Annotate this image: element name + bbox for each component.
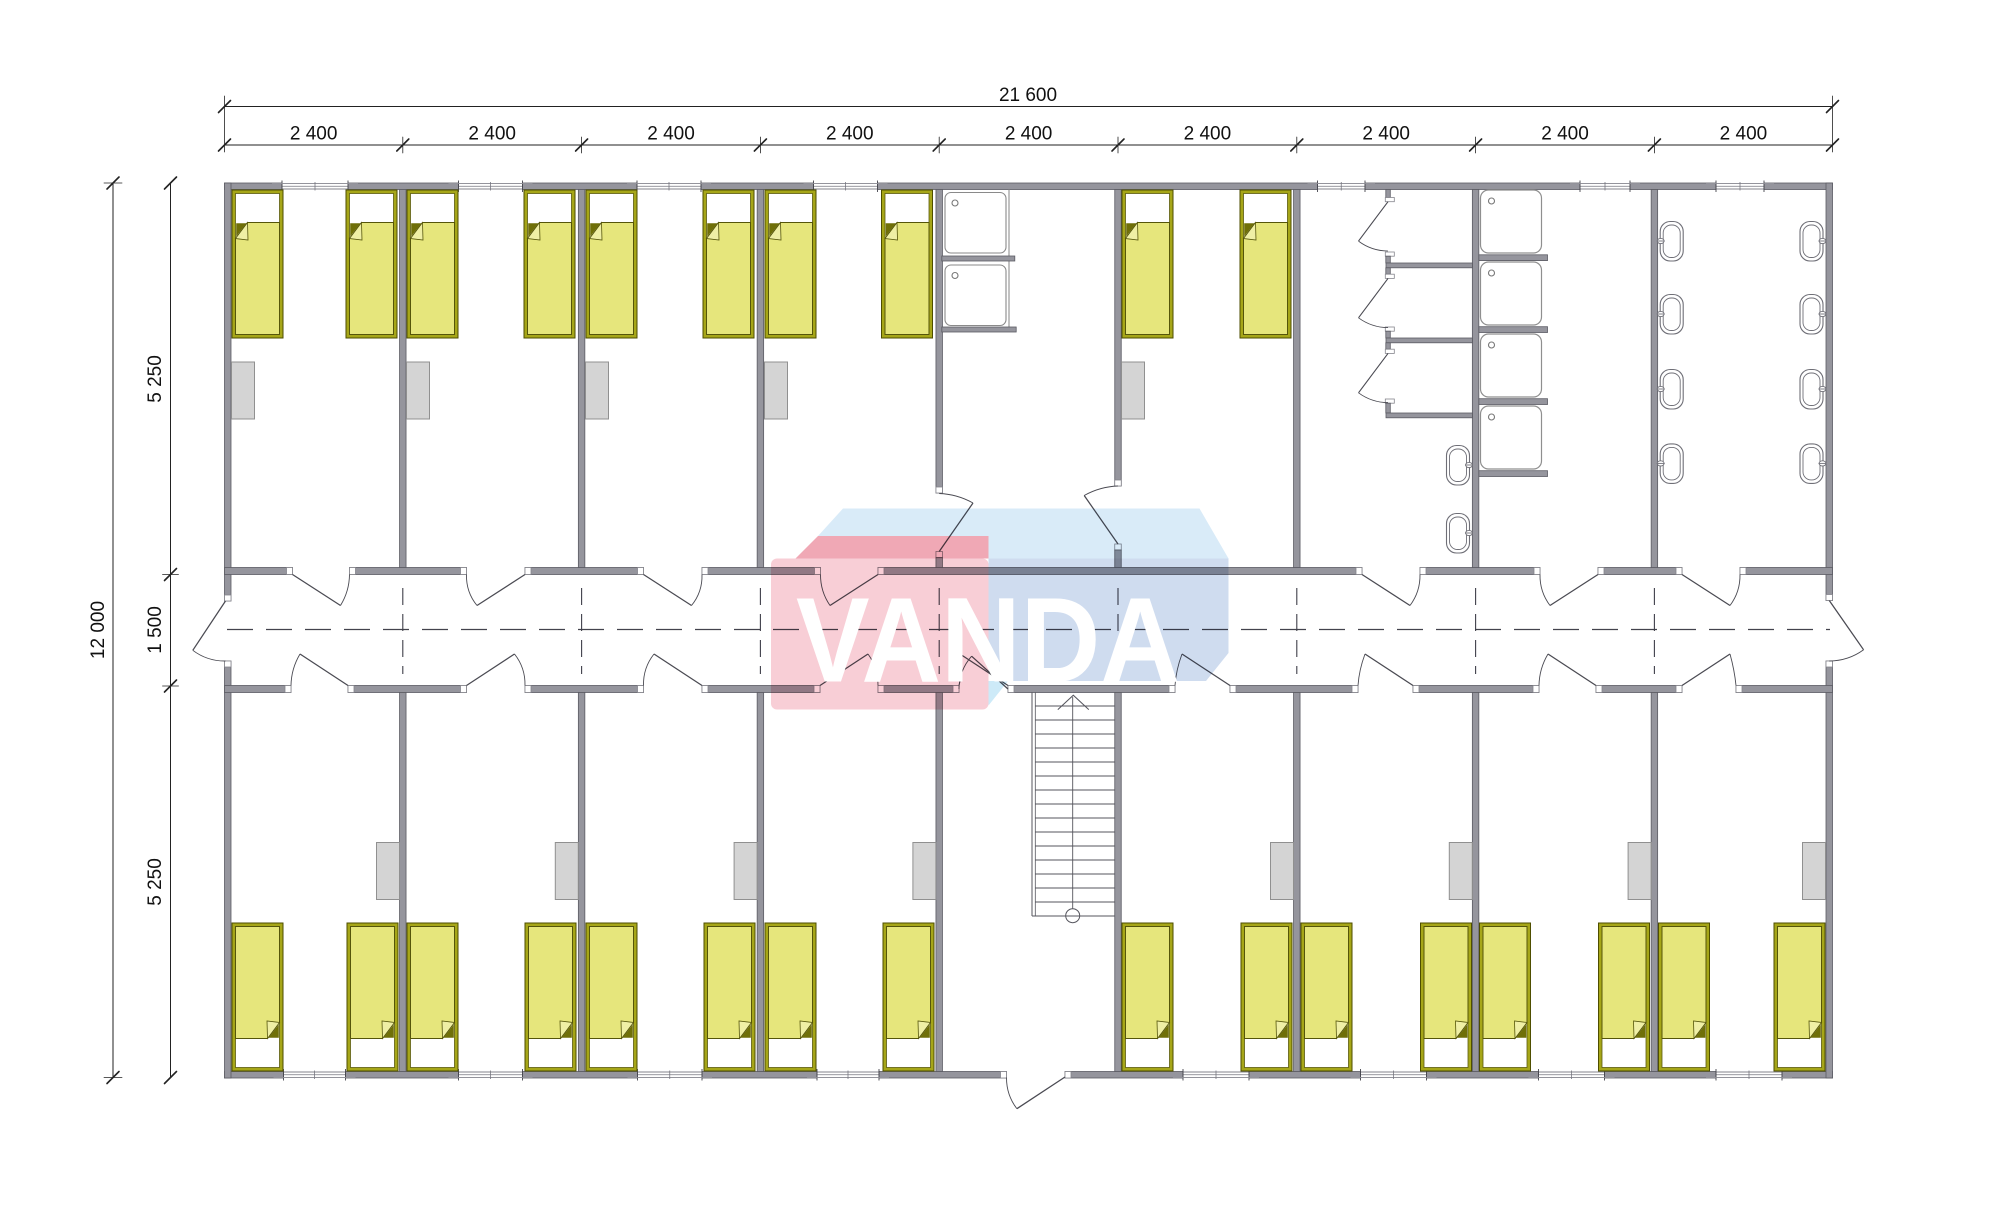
svg-text:2 400: 2 400 [1184, 124, 1232, 145]
svg-text:5 250: 5 250 [145, 355, 166, 403]
svg-text:21 600: 21 600 [999, 85, 1057, 106]
svg-text:2 400: 2 400 [1005, 124, 1053, 145]
svg-text:2 400: 2 400 [1720, 124, 1768, 145]
svg-text:2 400: 2 400 [1362, 124, 1410, 145]
svg-text:2 400: 2 400 [290, 124, 338, 145]
svg-text:2 400: 2 400 [468, 124, 516, 145]
svg-text:2 400: 2 400 [647, 124, 695, 145]
svg-text:2 400: 2 400 [826, 124, 874, 145]
svg-text:2 400: 2 400 [1541, 124, 1589, 145]
svg-text:VANDA: VANDA [796, 572, 1180, 708]
svg-text:12 000: 12 000 [88, 601, 109, 659]
svg-text:1 500: 1 500 [145, 606, 166, 654]
svg-text:5 250: 5 250 [145, 858, 166, 906]
